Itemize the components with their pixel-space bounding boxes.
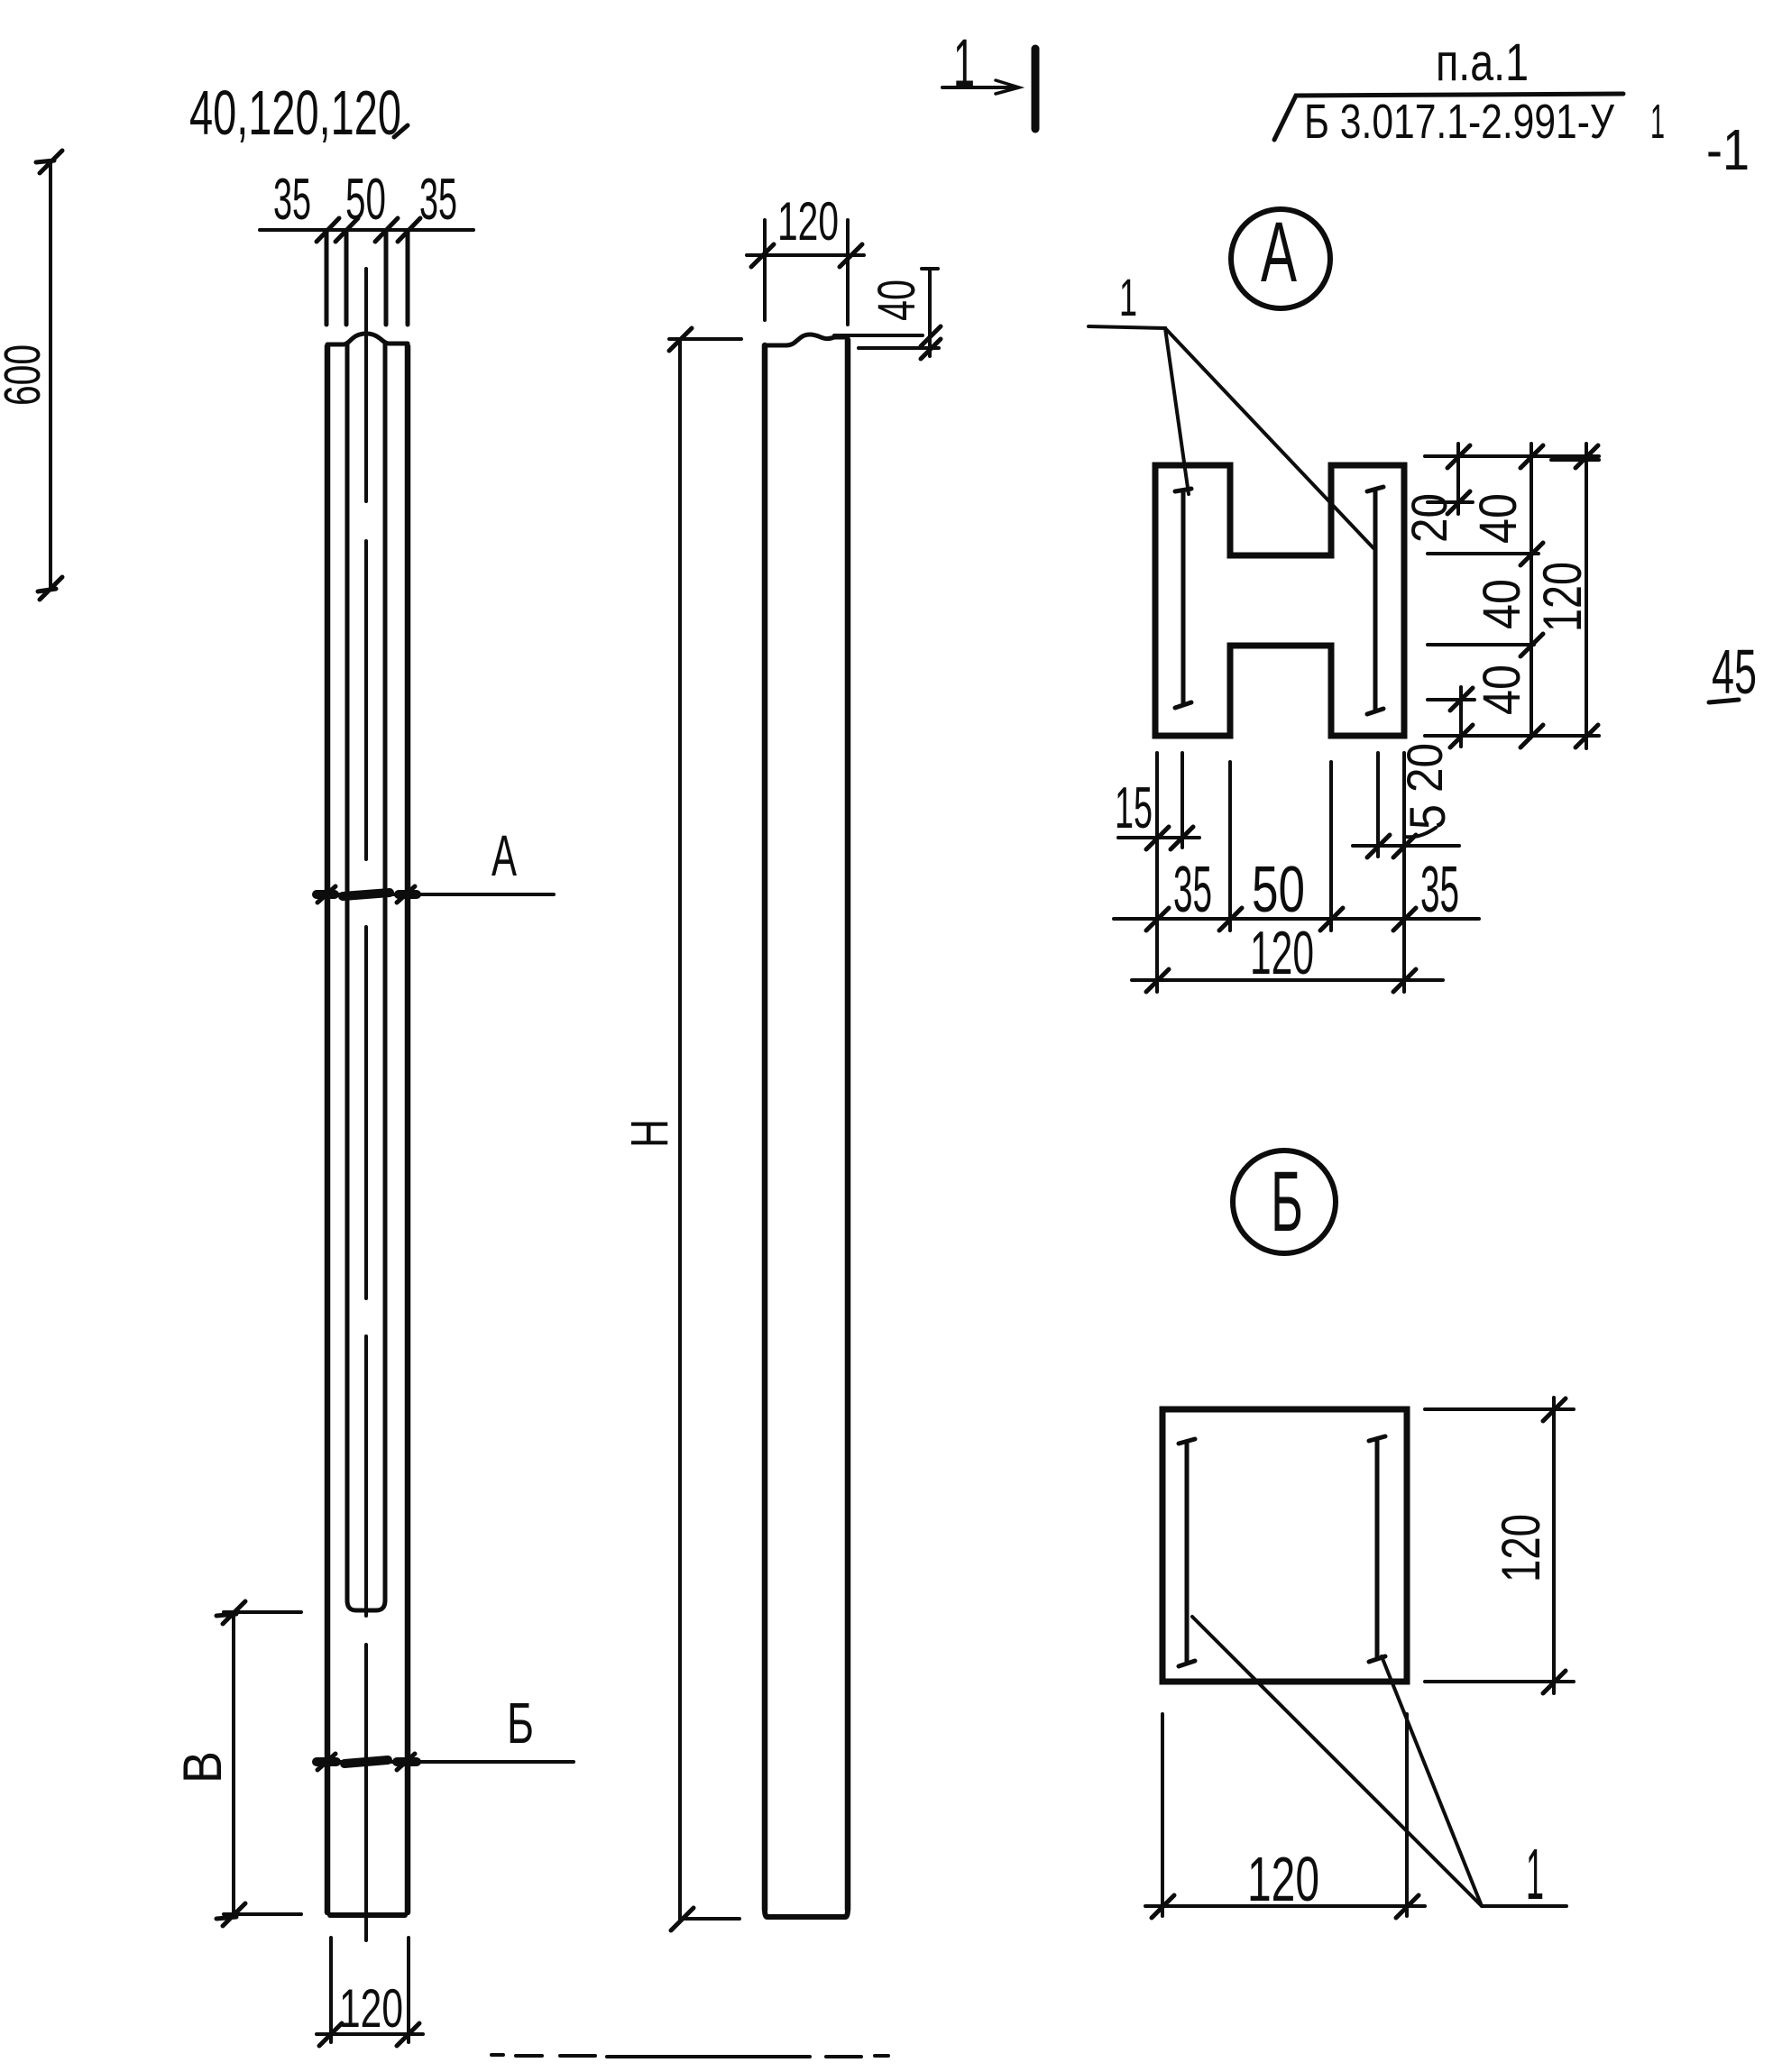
svg-text:20: 20: [1401, 493, 1457, 543]
svg-text:50: 50: [1252, 854, 1305, 926]
svg-text:-1: -1: [1706, 117, 1750, 182]
svg-text:15: 15: [1115, 775, 1153, 840]
svg-text:120: 120: [1250, 919, 1314, 987]
svg-text:Б: Б: [507, 1691, 534, 1756]
svg-text:40: 40: [1473, 579, 1531, 629]
svg-text:120: 120: [777, 191, 839, 252]
svg-text:120: 120: [1491, 1514, 1551, 1582]
svg-text:Б 3.017.1-2.991-У: Б 3.017.1-2.991-У: [1304, 95, 1615, 149]
svg-text:40,120,120: 40,120,120: [189, 78, 401, 148]
svg-text:35: 35: [419, 166, 457, 232]
svg-text:В: В: [172, 1751, 233, 1783]
svg-text:А: А: [1261, 205, 1297, 300]
svg-text:120: 120: [1532, 562, 1593, 632]
svg-text:Н: Н: [620, 1119, 679, 1148]
svg-text:5: 5: [1399, 804, 1456, 830]
svg-text:50: 50: [345, 166, 386, 232]
svg-text:120: 120: [339, 1978, 403, 2039]
svg-text:35: 35: [273, 166, 311, 232]
svg-text:45: 45: [1712, 637, 1757, 707]
svg-text:40: 40: [868, 280, 926, 321]
svg-text:Б: Б: [1271, 1154, 1303, 1250]
svg-text:1: 1: [1526, 1834, 1544, 1914]
svg-text:п.а.1: п.а.1: [1436, 33, 1529, 92]
svg-text:А: А: [491, 823, 517, 888]
svg-text:120: 120: [1247, 1844, 1319, 1914]
svg-text:600: 600: [0, 344, 51, 406]
svg-text:40: 40: [1469, 493, 1528, 544]
svg-text:35: 35: [1173, 854, 1212, 926]
svg-text:1: 1: [1650, 95, 1665, 149]
svg-text:35: 35: [1420, 854, 1459, 926]
svg-text:1: 1: [1119, 269, 1137, 327]
svg-text:40: 40: [1473, 665, 1531, 715]
